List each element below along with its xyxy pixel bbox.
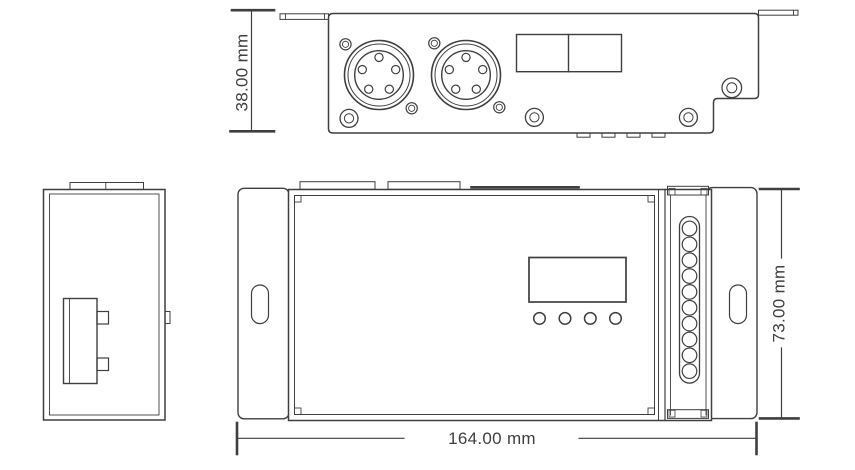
body-top-tab-2 bbox=[388, 182, 460, 190]
right-mounting-flange bbox=[706, 188, 757, 419]
dim-164-label: 164.00 mm bbox=[448, 429, 536, 448]
side-mounting-clip bbox=[64, 299, 109, 384]
drawing-svg: 38.00 mm 73.00 mm 164.00 mm bbox=[0, 0, 855, 470]
dim-38-label: 38.00 mm bbox=[232, 34, 251, 112]
xlr2-pin bbox=[452, 85, 460, 93]
side-outline bbox=[44, 190, 166, 421]
front-right-tab bbox=[759, 10, 799, 15]
left-mounting-flange bbox=[238, 188, 289, 418]
side-inner-line bbox=[50, 194, 160, 415]
left-mounting-slot bbox=[252, 285, 269, 324]
xlr-connector-2 bbox=[432, 41, 501, 110]
front-left-tab bbox=[280, 14, 329, 20]
dimension-drawing: 38.00 mm 73.00 mm 164.00 mm bbox=[0, 0, 855, 470]
xlr1-pin bbox=[358, 66, 366, 74]
body-outline bbox=[289, 190, 712, 421]
body-top-tab-1 bbox=[300, 182, 375, 190]
front-view bbox=[280, 10, 798, 137]
xlr1-pin bbox=[392, 66, 400, 74]
xlr1-pin bbox=[365, 85, 373, 93]
side-top-tab bbox=[70, 183, 144, 190]
dim-73-label: 73.00 mm bbox=[769, 265, 788, 343]
right-mounting-slot bbox=[730, 285, 747, 324]
front-switch-block bbox=[517, 35, 622, 72]
xlr2-pin bbox=[445, 66, 453, 74]
xlr-connector-1 bbox=[345, 41, 414, 110]
side-view bbox=[44, 183, 171, 421]
xlr2-pin bbox=[472, 85, 480, 93]
xlr1-pin bbox=[385, 85, 393, 93]
xlr2-pin bbox=[462, 53, 470, 61]
top-view bbox=[238, 182, 757, 421]
xlr2-pin bbox=[479, 66, 487, 74]
xlr1-pin bbox=[375, 53, 383, 61]
